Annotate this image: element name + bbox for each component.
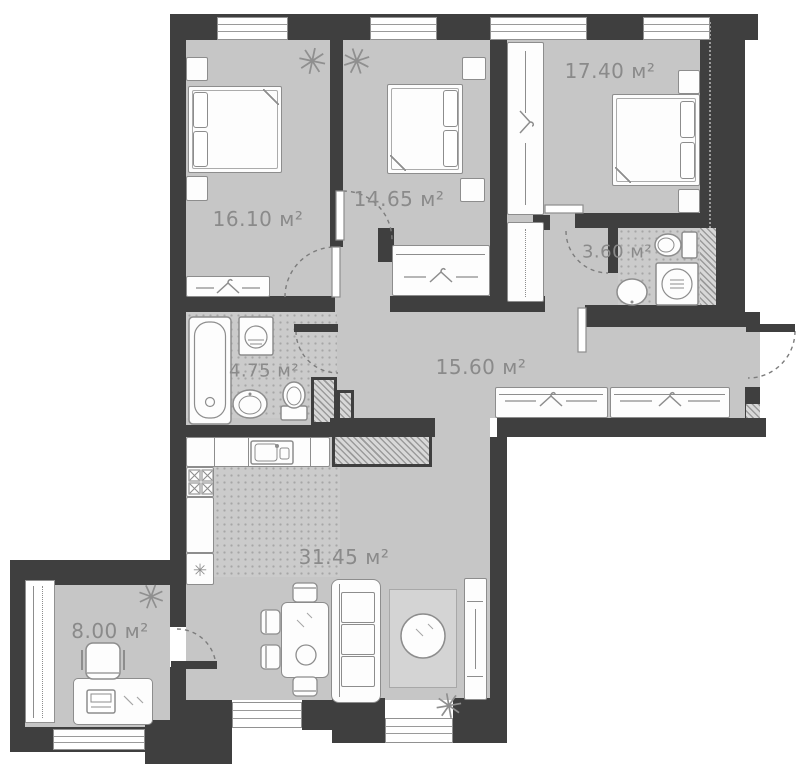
room-label-hallway: 15.60 м² bbox=[436, 355, 527, 379]
office-chair-icon bbox=[82, 643, 124, 679]
door-swing-arcs bbox=[177, 191, 795, 668]
sink-icon bbox=[233, 390, 267, 418]
chair-icon bbox=[261, 645, 280, 669]
door-leaf-bedroom-1 bbox=[332, 247, 340, 297]
door-leaf-entry bbox=[746, 324, 795, 332]
door-arc-bedroom-1 bbox=[285, 247, 335, 297]
stove-burners-icon bbox=[189, 470, 213, 494]
hanger-icon bbox=[540, 393, 562, 406]
room-label-bedroom-3: 17.40 м² bbox=[565, 59, 656, 83]
room-label-kitchen-living: 31.45 м² bbox=[299, 545, 390, 569]
kitchen-sink-icon bbox=[251, 441, 293, 464]
room-label-bathroom-small: 3.60 м² bbox=[582, 242, 652, 263]
bathtub-icon bbox=[189, 317, 231, 424]
door-leaf-vestibule bbox=[578, 308, 586, 352]
toilet-icon bbox=[655, 232, 697, 258]
plant-icon: ✳ bbox=[336, 38, 377, 86]
laptop-icon bbox=[87, 690, 115, 713]
room-label-balcony-office: 8.00 м² bbox=[71, 619, 149, 643]
plant-icon: ✳ bbox=[293, 39, 331, 85]
chair-icon bbox=[293, 677, 317, 696]
room-label-bedroom-1: 16.10 м² bbox=[213, 207, 304, 231]
hanger-icon bbox=[217, 280, 239, 293]
plant-icon: ✳ bbox=[130, 574, 170, 621]
fridge-snowflake-icon: ✳ bbox=[193, 561, 207, 581]
room-label-bathroom-main: 4.75 м² bbox=[229, 361, 299, 382]
dining-chairs bbox=[261, 583, 317, 696]
hanger-icon bbox=[430, 269, 452, 282]
chair-icon bbox=[293, 583, 317, 602]
room-label-bedroom-2: 14.65 м² bbox=[354, 187, 445, 211]
coffee-table-icon bbox=[401, 614, 445, 658]
sink-icon bbox=[617, 279, 647, 305]
door-leaves-white bbox=[332, 191, 586, 352]
washing-machine-icon bbox=[239, 317, 273, 355]
floor-plan: ✳ ✳ ✳ ✳ bbox=[0, 0, 800, 764]
plant-icon: ✳ bbox=[432, 685, 467, 729]
shower-icon bbox=[656, 263, 698, 305]
door-arc-bathroom-main bbox=[296, 331, 338, 373]
hanger-icon bbox=[659, 393, 681, 406]
chair-icon bbox=[261, 610, 280, 634]
door-leaf-balcony bbox=[171, 661, 217, 669]
hanger-icon bbox=[520, 111, 533, 133]
door-leaf-bedroom-2 bbox=[336, 191, 344, 240]
dining-table-decor bbox=[296, 613, 316, 665]
toilet-icon bbox=[281, 382, 307, 420]
desk-decor-lines bbox=[124, 696, 143, 705]
door-leaf-bathroom-main bbox=[294, 324, 338, 332]
door-leaf-bedroom-3 bbox=[545, 205, 583, 213]
plan-details-overlay: ✳ ✳ ✳ ✳ bbox=[0, 0, 800, 764]
door-arc-entry bbox=[748, 331, 795, 378]
